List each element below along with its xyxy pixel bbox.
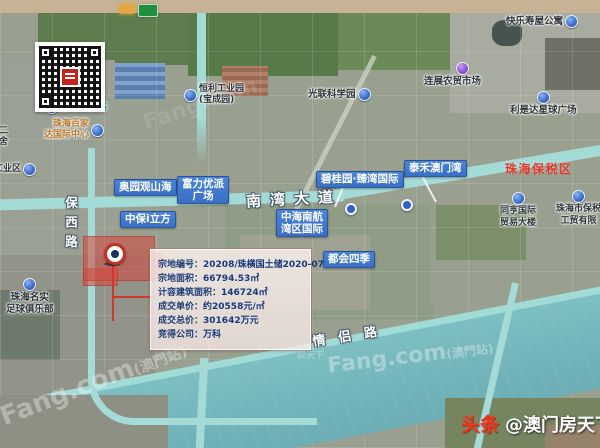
card-value: 301642万元 bbox=[203, 313, 259, 326]
parcel-leader-vertical bbox=[112, 261, 114, 321]
poi-icon bbox=[565, 15, 578, 28]
qr-finder-icon bbox=[88, 46, 101, 59]
poi-label: 利是达星球广场 bbox=[510, 105, 577, 116]
publisher-badge: 头条 @澳门房天下 bbox=[461, 410, 600, 437]
poi-icon bbox=[23, 163, 36, 176]
card-label: 竞得公司： bbox=[158, 327, 203, 340]
map-label-biguiyuan-zhenwan[interactable]: 碧桂园·臻湾国际 bbox=[316, 171, 404, 188]
badge-headline: 头条 bbox=[461, 410, 499, 437]
highway-shield-icon bbox=[138, 4, 158, 17]
card-label: 宗地编号： bbox=[158, 257, 203, 270]
badge-account: @澳门房天下 bbox=[505, 411, 600, 437]
map-label-aoyuan-guanshanhai[interactable]: 奥园观山海 bbox=[114, 179, 177, 196]
card-label: 宗地面积： bbox=[158, 271, 203, 284]
qr-finder-icon bbox=[39, 95, 52, 108]
label-line: 广场 bbox=[182, 190, 224, 202]
label-line: 中海南航 bbox=[281, 211, 323, 223]
poi-edge-dormitory[interactable]: 业集团二 宿舍 bbox=[0, 126, 8, 148]
card-row: 竞得公司：万科 bbox=[158, 326, 310, 340]
poi-mingshi-football-club[interactable]: 珠海名实 足球俱乐部 bbox=[6, 278, 54, 315]
qr-center-logo bbox=[60, 67, 80, 87]
highway-sign-text-blur bbox=[119, 4, 135, 14]
card-value: 146724㎡ bbox=[221, 285, 268, 298]
poi-guanglian-kexueyuan[interactable]: 光联科学园 bbox=[308, 88, 371, 101]
map-label-taihe-aomenwan[interactable]: 泰禾澳门湾 bbox=[404, 160, 467, 177]
label-line: 湾区国际 bbox=[281, 223, 323, 235]
poi-label: 恒利工业园 bbox=[199, 84, 244, 95]
map-label-fuli-youpai[interactable]: 富力优派 广场 bbox=[177, 176, 229, 204]
poi-label: 珠海百家 bbox=[44, 119, 89, 130]
card-value: 66794.53㎡ bbox=[203, 271, 259, 284]
poi-lishida-guangchang[interactable]: 利是达星球广场 bbox=[510, 91, 577, 116]
terrain-expressway-band bbox=[0, 0, 600, 14]
card-label: 成交单价： bbox=[158, 299, 203, 312]
poi-icon bbox=[537, 91, 550, 104]
parcel-map-pin[interactable] bbox=[104, 243, 126, 265]
satellite-map-canvas[interactable]: 宗地编号：20208/珠横国土储2020-07 宗地面积：66794.53㎡ 计… bbox=[0, 0, 600, 448]
map-dot-marker[interactable] bbox=[401, 199, 413, 211]
card-row: 宗地面积：66794.53㎡ bbox=[158, 270, 310, 284]
poi-label: 快乐寿屋公寓 bbox=[506, 16, 563, 27]
card-row: 宗地编号：20208/珠横国土储2020-07 bbox=[158, 256, 310, 270]
poi-baoshui-gongmao[interactable]: 珠海市保税 工贸有限 bbox=[556, 190, 600, 227]
poi-label: 贸易大楼 bbox=[500, 218, 536, 229]
card-label: 计容建筑面积： bbox=[158, 285, 221, 298]
poi-label: 足球俱乐部 bbox=[6, 304, 54, 315]
card-row: 成交总价：301642万元 bbox=[158, 312, 310, 326]
card-row: 计容建筑面积：146724㎡ bbox=[158, 284, 310, 298]
poi-hengli-gongyeyuan[interactable]: 恒利工业园 (宝成园) bbox=[184, 84, 244, 106]
map-label-baoshuiqu[interactable]: 珠海保税区 bbox=[505, 160, 573, 177]
card-label: 成交总价： bbox=[158, 313, 203, 326]
poi-icon bbox=[358, 88, 371, 101]
map-label-duhui-siji[interactable]: 都会四季 bbox=[323, 251, 375, 268]
poi-label: 连展农贸市场 bbox=[424, 76, 481, 87]
poi-icon bbox=[184, 89, 197, 102]
parcel-leader-horizontal bbox=[112, 296, 152, 298]
poi-label: 光联科学园 bbox=[308, 89, 356, 100]
qr-modules bbox=[39, 46, 101, 108]
card-value: 20208/珠横国土储2020-07 bbox=[203, 257, 324, 270]
map-dot-marker[interactable] bbox=[345, 203, 357, 215]
poi-label: 宿舍 bbox=[0, 137, 8, 148]
poi-edge-industrial-zone[interactable]: 工业区 bbox=[0, 163, 36, 176]
poi-label: 工贸有限 bbox=[561, 216, 597, 227]
card-row: 成交单价：约20558元/㎡ bbox=[158, 298, 310, 312]
poi-tongheng-trade-building[interactable]: 同亨国际 贸易大楼 bbox=[500, 192, 536, 229]
road-label-baoxi: 保西路 bbox=[61, 196, 80, 255]
poi-icon bbox=[512, 192, 525, 205]
watermark-site: (澳門站) bbox=[446, 342, 495, 362]
poi-icon bbox=[23, 278, 36, 291]
poi-kuaile-gongyu[interactable]: 快乐寿屋公寓 bbox=[506, 15, 578, 28]
poi-icon bbox=[91, 124, 104, 137]
map-label-zhongbao-lifang[interactable]: 中保i立方 bbox=[120, 211, 176, 228]
parcel-info-card: 宗地编号：20208/珠横国土储2020-07 宗地面积：66794.53㎡ 计… bbox=[150, 249, 311, 350]
poi-label: 工业区 bbox=[0, 164, 21, 175]
label-line: 富力优派 bbox=[182, 178, 224, 190]
poi-icon bbox=[572, 190, 585, 203]
pin-core-dot bbox=[111, 250, 119, 258]
poi-label: 珠海市保税 bbox=[556, 204, 600, 215]
card-value: 万科 bbox=[203, 327, 221, 340]
poi-label: 同亨国际 bbox=[500, 206, 536, 217]
poi-icon bbox=[456, 62, 469, 75]
card-value: 约20558元/㎡ bbox=[203, 299, 265, 312]
qr-code bbox=[35, 42, 105, 112]
poi-label: 业集团二 bbox=[0, 126, 8, 137]
poi-lianzhan-shichang[interactable]: 连展农贸市场 bbox=[424, 62, 481, 87]
qr-finder-icon bbox=[39, 46, 52, 59]
poi-label: (宝成园) bbox=[199, 95, 244, 106]
poi-baijiada-center[interactable]: 珠海百家 达国际中心 bbox=[44, 119, 104, 141]
poi-label: 珠海名实 bbox=[11, 292, 49, 303]
poi-label: 达国际中心 bbox=[44, 130, 89, 141]
map-label-zhonghai-nanhang[interactable]: 中海南航 湾区国际 bbox=[276, 209, 328, 237]
